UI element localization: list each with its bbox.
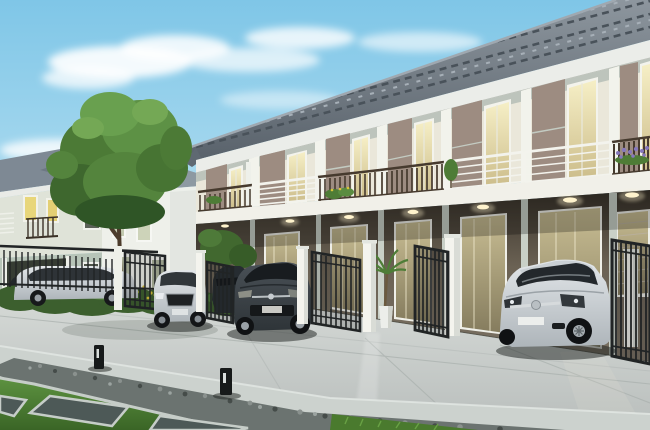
metal-gate: [612, 240, 650, 364]
fence-post: [114, 246, 122, 310]
metal-gate: [207, 262, 233, 323]
scene: [0, 0, 650, 430]
gate-pillar: [195, 250, 206, 312]
metal-gate: [312, 252, 360, 331]
gate-pillar: [296, 246, 309, 324]
metal-gate: [415, 246, 448, 337]
gate-pillar: [362, 240, 377, 332]
silver-coupe: [496, 260, 616, 360]
